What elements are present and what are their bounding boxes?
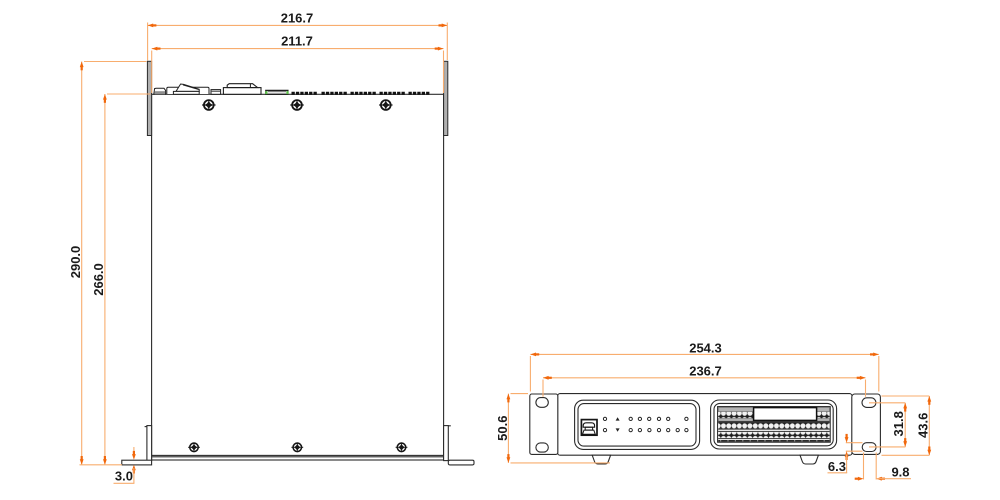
svg-text:211.7: 211.7 xyxy=(281,34,313,49)
svg-text:3.0: 3.0 xyxy=(115,468,133,483)
svg-text:290.0: 290.0 xyxy=(68,246,83,279)
svg-text:6.3: 6.3 xyxy=(828,459,846,474)
svg-text:31.8: 31.8 xyxy=(891,411,906,436)
svg-text:43.6: 43.6 xyxy=(915,413,930,438)
svg-text:236.7: 236.7 xyxy=(689,363,722,378)
svg-text:216.7: 216.7 xyxy=(281,11,314,26)
svg-text:254.3: 254.3 xyxy=(689,340,722,355)
svg-text:9.8: 9.8 xyxy=(891,465,909,480)
svg-text:266.0: 266.0 xyxy=(91,263,106,296)
svg-text:50.6: 50.6 xyxy=(495,416,510,441)
